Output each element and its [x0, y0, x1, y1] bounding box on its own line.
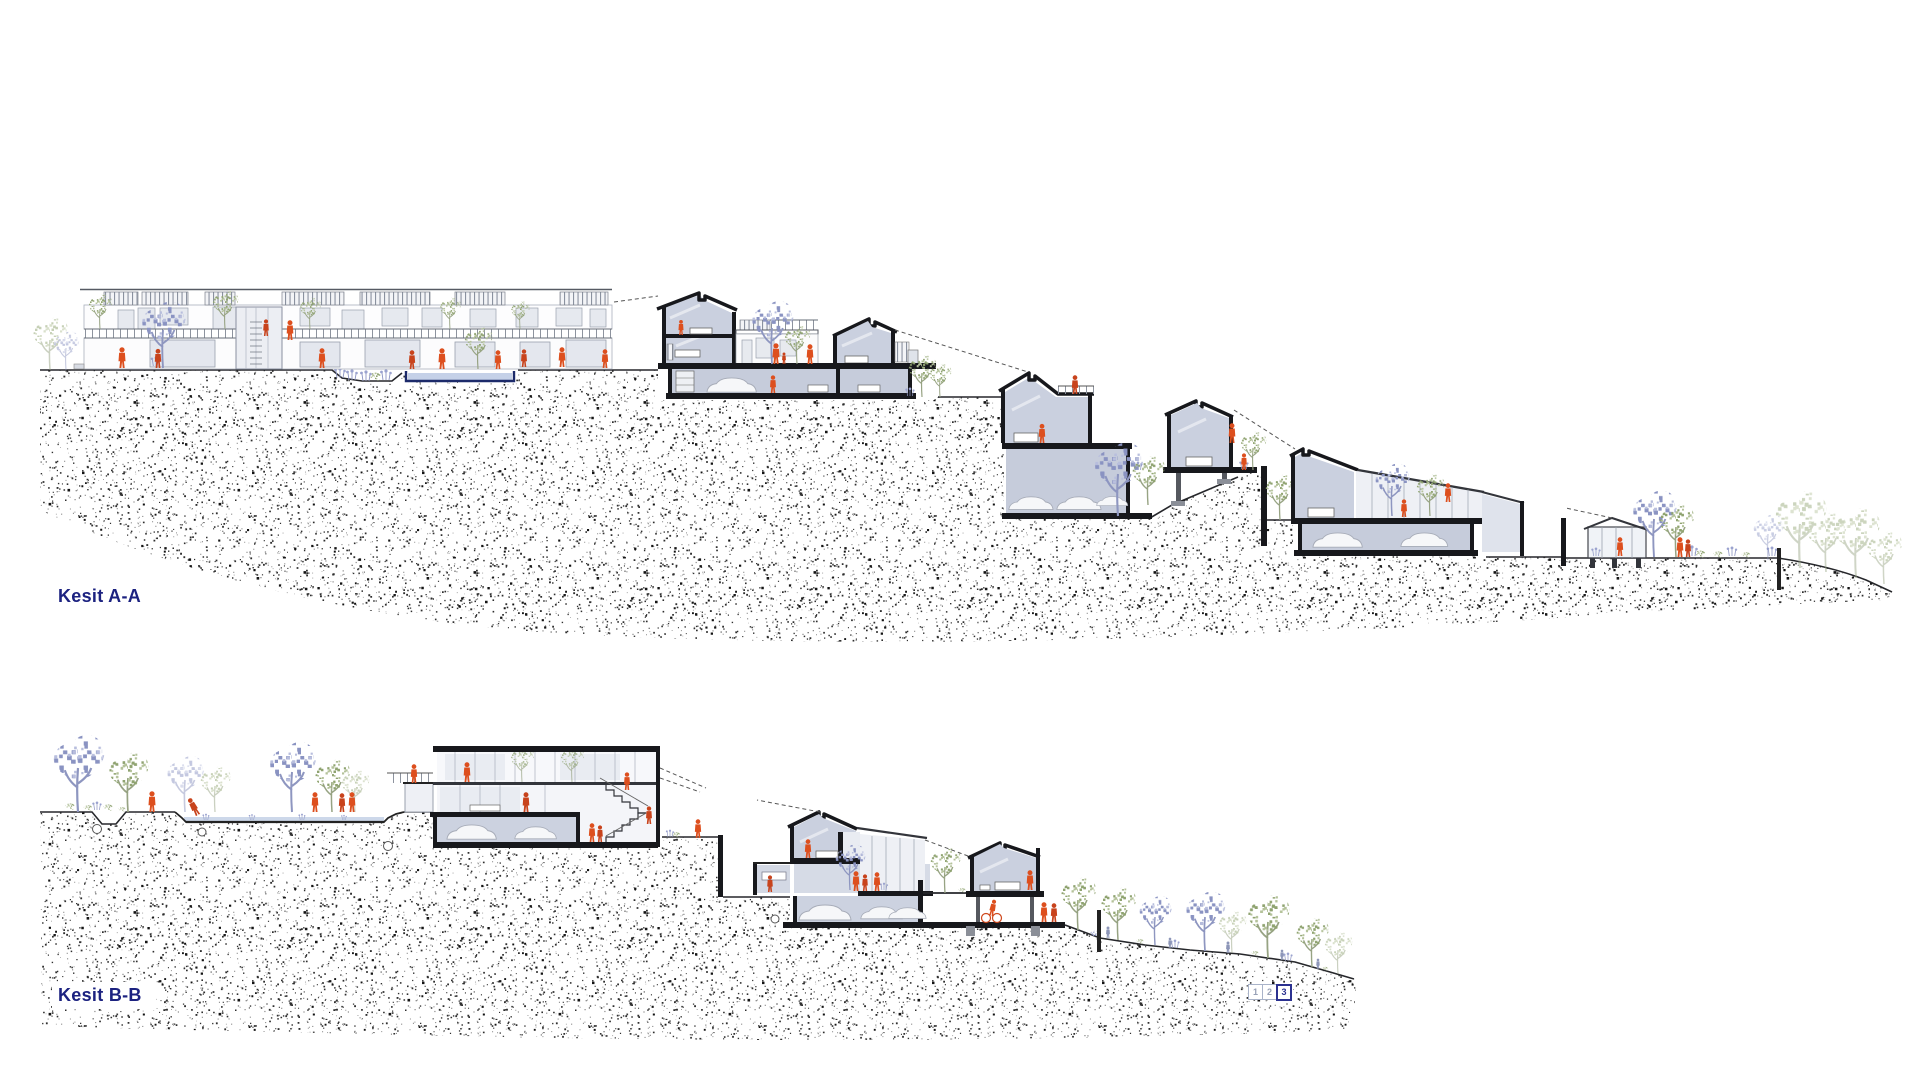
ground-b [40, 812, 1356, 1040]
section-b-drawing [40, 735, 1356, 1040]
stair-tower [236, 307, 282, 369]
pager-page-3[interactable]: 3 [1276, 984, 1292, 1001]
cyclist [982, 899, 1002, 922]
house-cluster-3 [1290, 449, 1524, 556]
pager-page-1[interactable]: 1 [1248, 984, 1263, 1000]
terraced-building [74, 290, 612, 370]
section-a-label-text: Kesit A-A [58, 586, 141, 606]
pager-page-2[interactable]: 2 [1262, 984, 1277, 1000]
left-trees-b [54, 735, 370, 812]
pool [406, 371, 514, 381]
pond [175, 812, 404, 822]
architectural-sections-sheet: Kesit A-A Kesit B-B 1 2 3 [0, 0, 1920, 1080]
section-a-drawing [34, 290, 1903, 642]
left-pale-trees-a [34, 318, 80, 371]
page-indicator: 1 2 3 [1249, 984, 1292, 1001]
section-b-label: Kesit B-B [52, 982, 156, 1009]
section-a-label: Kesit A-A [52, 583, 155, 610]
house-cluster-1 [657, 293, 951, 399]
ground-a [40, 370, 1892, 642]
sections-drawing [0, 0, 1920, 1080]
section-b-label-text: Kesit B-B [58, 985, 142, 1005]
